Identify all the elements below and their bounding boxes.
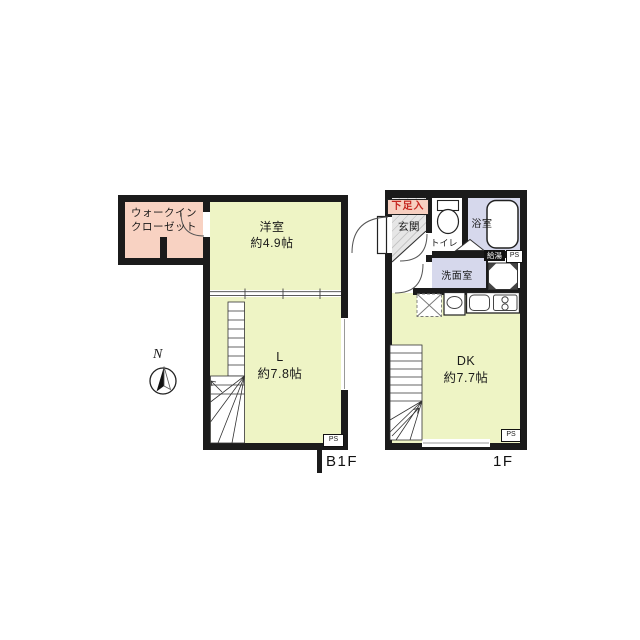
living-room-size: 約7.8帖 xyxy=(258,367,303,381)
washroom-utility-divider xyxy=(486,258,488,290)
entrance-door-opening xyxy=(385,217,392,253)
sliding-door xyxy=(210,290,341,297)
walk-in-closet-label: ウォークイン クローゼット xyxy=(122,206,206,234)
dk-name: DK xyxy=(457,354,475,368)
b1f-ps-label: PS xyxy=(323,434,344,447)
closet-label-line2: クローゼット xyxy=(131,221,197,233)
b1f-window xyxy=(341,318,348,390)
1f-floor-label: 1F xyxy=(493,453,514,470)
entrance-label: 玄関 xyxy=(392,220,426,234)
entrance-door-arc xyxy=(352,217,388,253)
dk-label: DK 約7.7帖 xyxy=(426,353,506,387)
compass-north-icon xyxy=(150,367,176,395)
dk-size: 約7.7帖 xyxy=(444,371,489,385)
b1f-bottom-wall-stub xyxy=(317,450,322,473)
1f-ps-lower-label: PS xyxy=(501,429,521,442)
western-room-name: 洋室 xyxy=(259,220,284,234)
washroom-label: 洗面室 xyxy=(428,270,486,284)
living-room-label: L 約7.8帖 xyxy=(240,349,320,383)
western-room-label: 洋室 約4.9帖 xyxy=(232,219,312,251)
shoe-box-label: 下足入 xyxy=(387,199,429,215)
closet-wall-stub xyxy=(160,237,167,258)
b1f-floor-label: B1F xyxy=(326,453,358,470)
toilet-label: トイレ xyxy=(424,237,464,249)
bathroom-label: 浴室 xyxy=(465,218,499,232)
floorplan-page: { "b1f": { "floor_label": "B1F", "walk_i… xyxy=(0,0,640,640)
dk-window xyxy=(422,439,490,447)
kitchen-wall xyxy=(413,288,520,295)
1f-ps-upper-label: PS xyxy=(506,250,523,263)
western-room-size: 約4.9帖 xyxy=(250,236,293,250)
living-room-name: L xyxy=(276,350,283,364)
compass-north-label: N xyxy=(153,347,162,363)
closet-label-line1: ウォークイン xyxy=(131,207,197,219)
water-heater-label: 給湯 xyxy=(484,250,505,261)
